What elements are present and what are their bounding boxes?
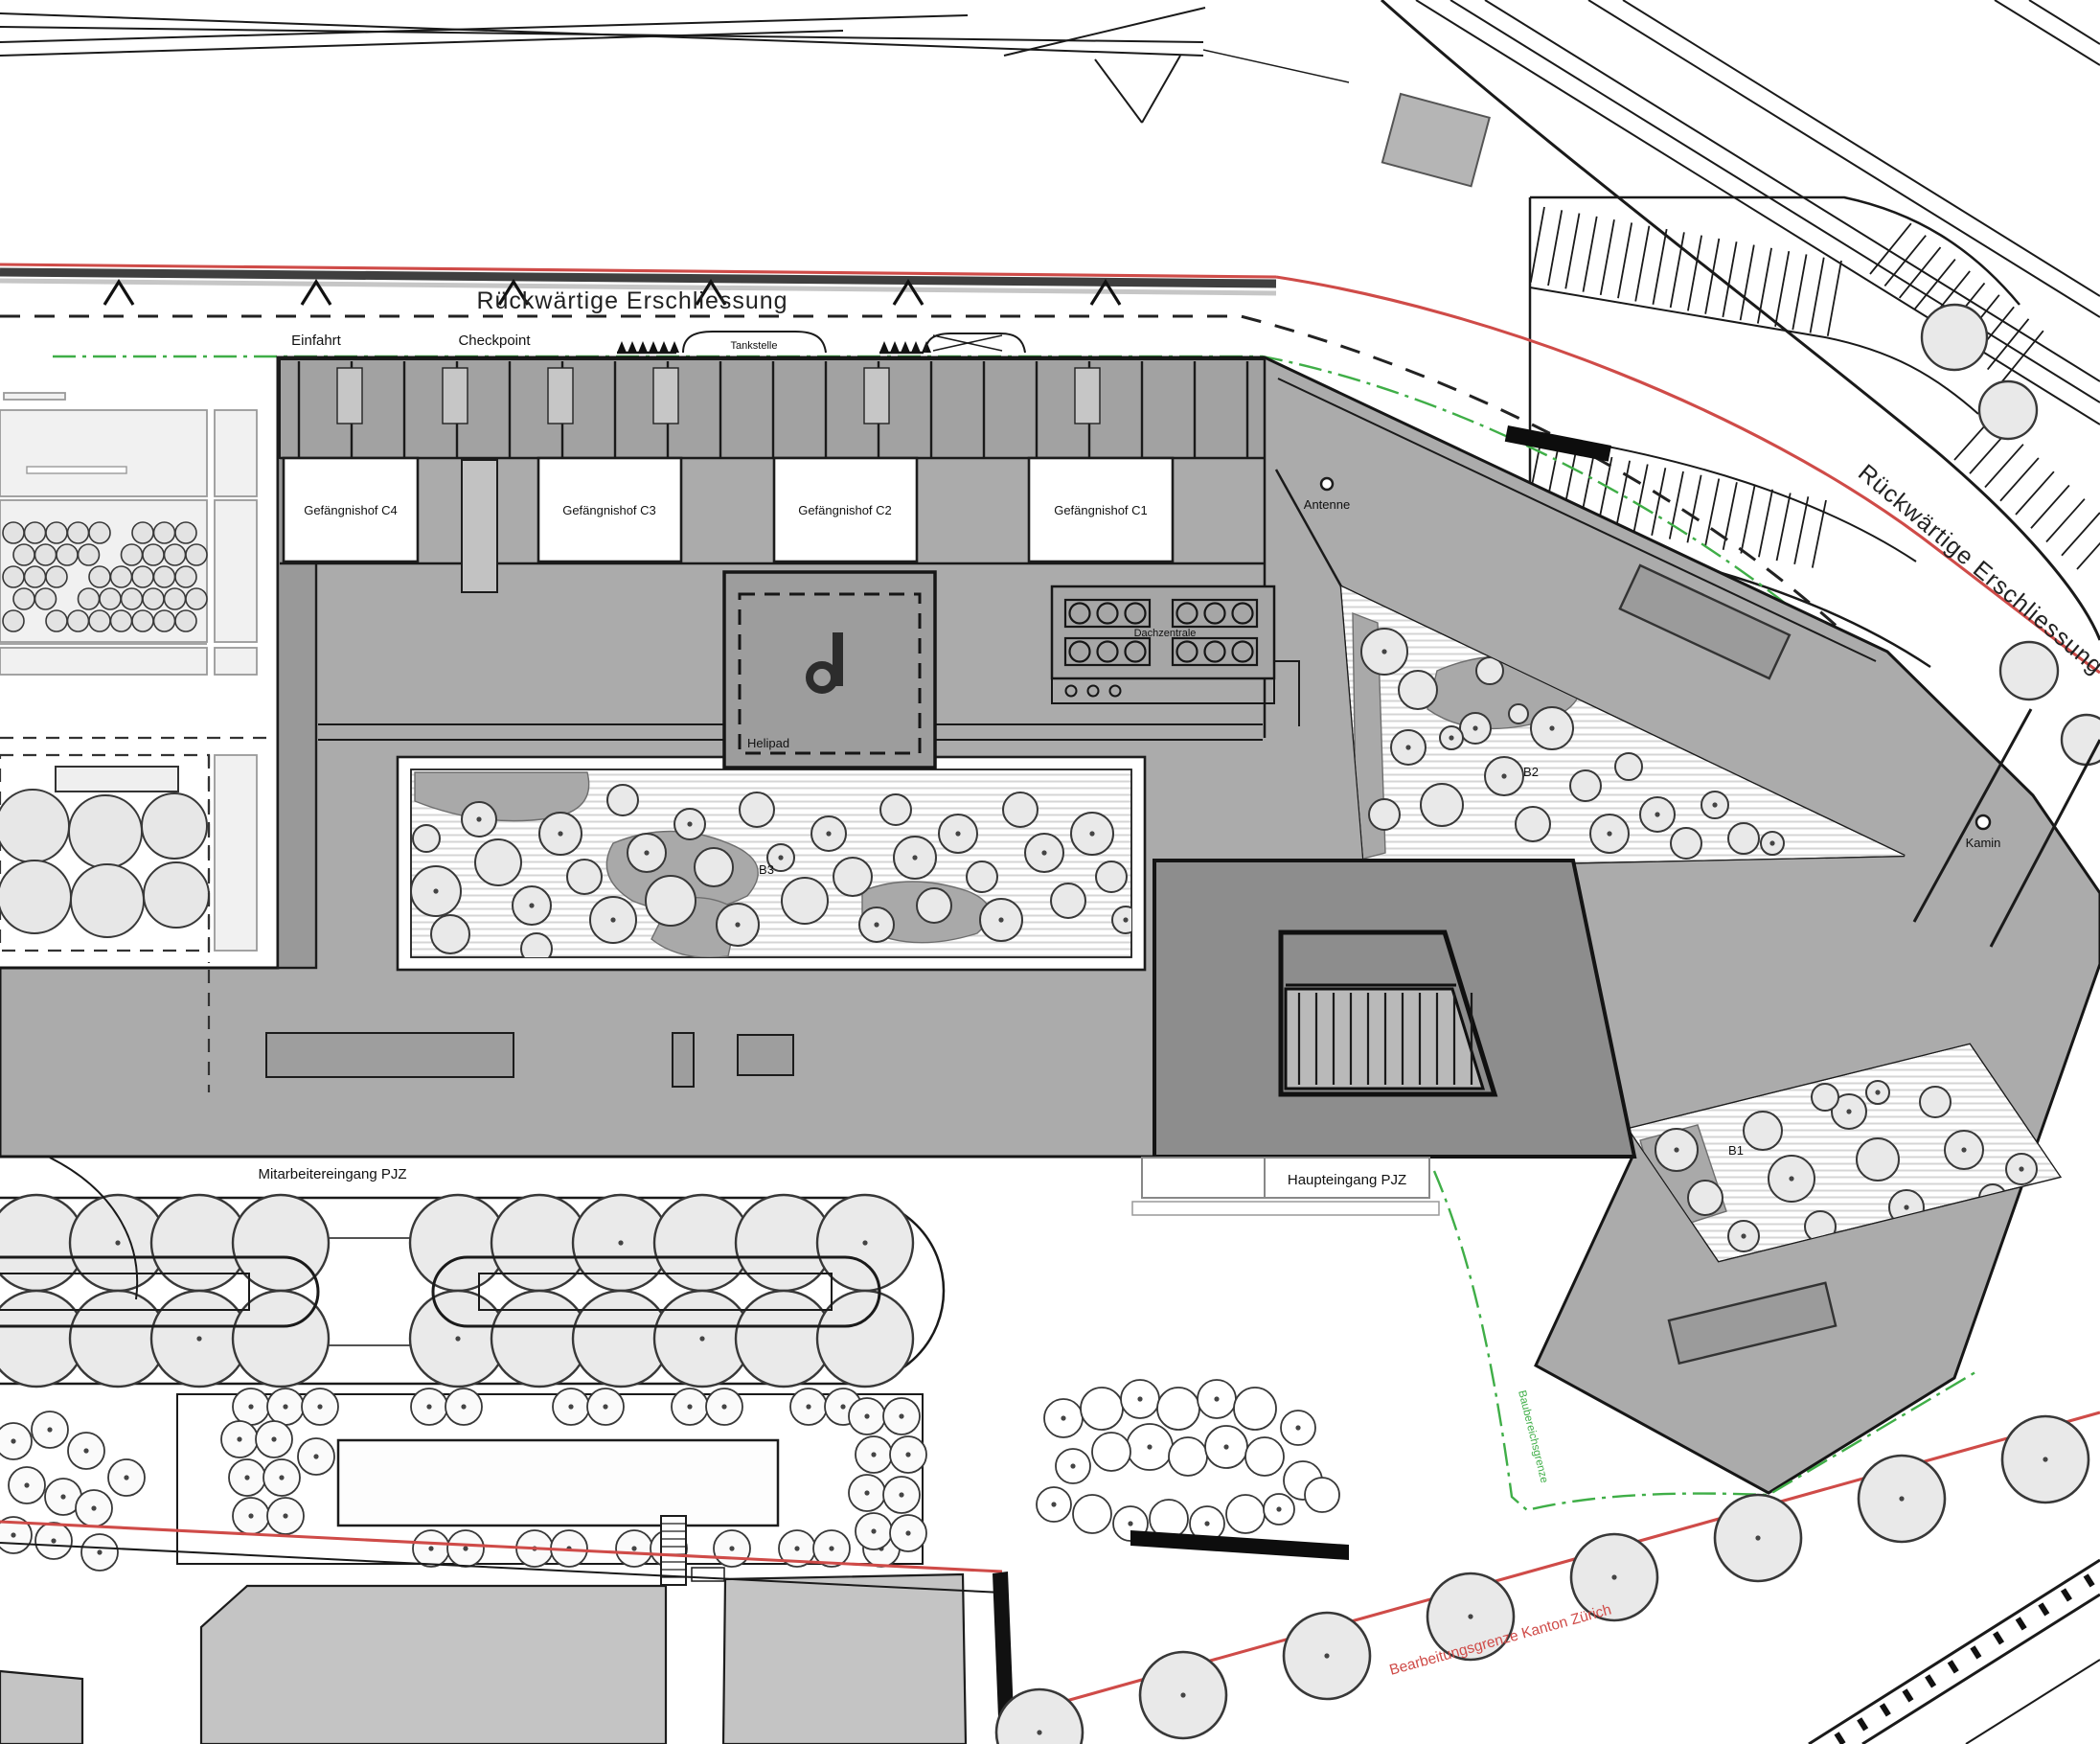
neighbor-block-south-3 — [0, 1671, 82, 1744]
plaza-planter — [266, 1033, 514, 1077]
haupteingang-forecourt: Haupteingang PJZ — [1132, 1158, 1439, 1215]
checkpoint-label: Checkpoint — [458, 333, 531, 349]
garden-courtyard-b3: B3 — [398, 757, 1145, 970]
site-plan-canvas: Rückwärtige Erschliessung Rückwärtige Er… — [0, 0, 2100, 1744]
pergola — [338, 1440, 778, 1526]
neighbor-block-south-2 — [723, 1574, 966, 1744]
neighbor-large-trees — [0, 790, 209, 937]
b3-label: B3 — [759, 862, 774, 877]
courtyard-c4-label: Gefängnishof C4 — [304, 503, 398, 517]
tree-cluster-center — [1037, 1380, 1339, 1541]
neighbor-parcel-west — [0, 393, 274, 963]
tracks-southeast-corner — [1809, 1560, 2100, 1744]
tankstelle-label: Tankstelle — [731, 340, 778, 352]
railway-tracks-northwest — [0, 8, 1349, 123]
einfahrt-label: Einfahrt — [291, 333, 342, 349]
parking-lot-edge — [1530, 197, 2020, 305]
exterior-stair — [661, 1516, 686, 1585]
courtyard-c3-label: Gefängnishof C3 — [562, 503, 656, 517]
boundary-green-label: Baubereichsgrenze — [1516, 1389, 1550, 1484]
helipad: Helipad — [724, 572, 935, 768]
antenne-label: Antenne — [1304, 497, 1350, 512]
antenne-symbol — [1321, 478, 1333, 490]
kamin-symbol — [1976, 815, 1990, 829]
site-plan-drawing: Rückwärtige Erschliessung Rückwärtige Er… — [0, 0, 2100, 1744]
rear-access-label-top: Rückwärtige Erschliessung — [476, 287, 787, 314]
hatched-bar-south — [1130, 1530, 1349, 1560]
hatched-bar-north — [1505, 425, 1611, 462]
access-gates: Einfahrt Checkpoint Tankstelle — [291, 332, 1025, 353]
dachzentrale-label: Dachzentrale — [1134, 628, 1197, 639]
mitarbeitereingang-label: Mitarbeitereingang PJZ — [258, 1166, 406, 1182]
b2-label: B2 — [1523, 765, 1539, 779]
neighbor-block-south-1 — [201, 1586, 666, 1744]
courtyard-c2-label: Gefängnishof C2 — [798, 503, 892, 517]
helipad-label: Helipad — [747, 736, 789, 750]
small-building-north — [1382, 94, 1490, 186]
parking-stalls-row-d — [1954, 417, 2100, 569]
haupteingang-label: Haupteingang PJZ — [1288, 1172, 1406, 1188]
canopy-symbol-east — [879, 341, 931, 353]
parking-stalls-row-a — [1531, 207, 1841, 336]
b1-label: B1 — [1728, 1143, 1744, 1158]
canopy-symbol-west — [617, 341, 679, 353]
entrance-hall-block — [1154, 861, 1634, 1157]
kamin-label: Kamin — [1966, 836, 2001, 850]
courtyard-c1-label: Gefängnishof C1 — [1054, 503, 1148, 517]
